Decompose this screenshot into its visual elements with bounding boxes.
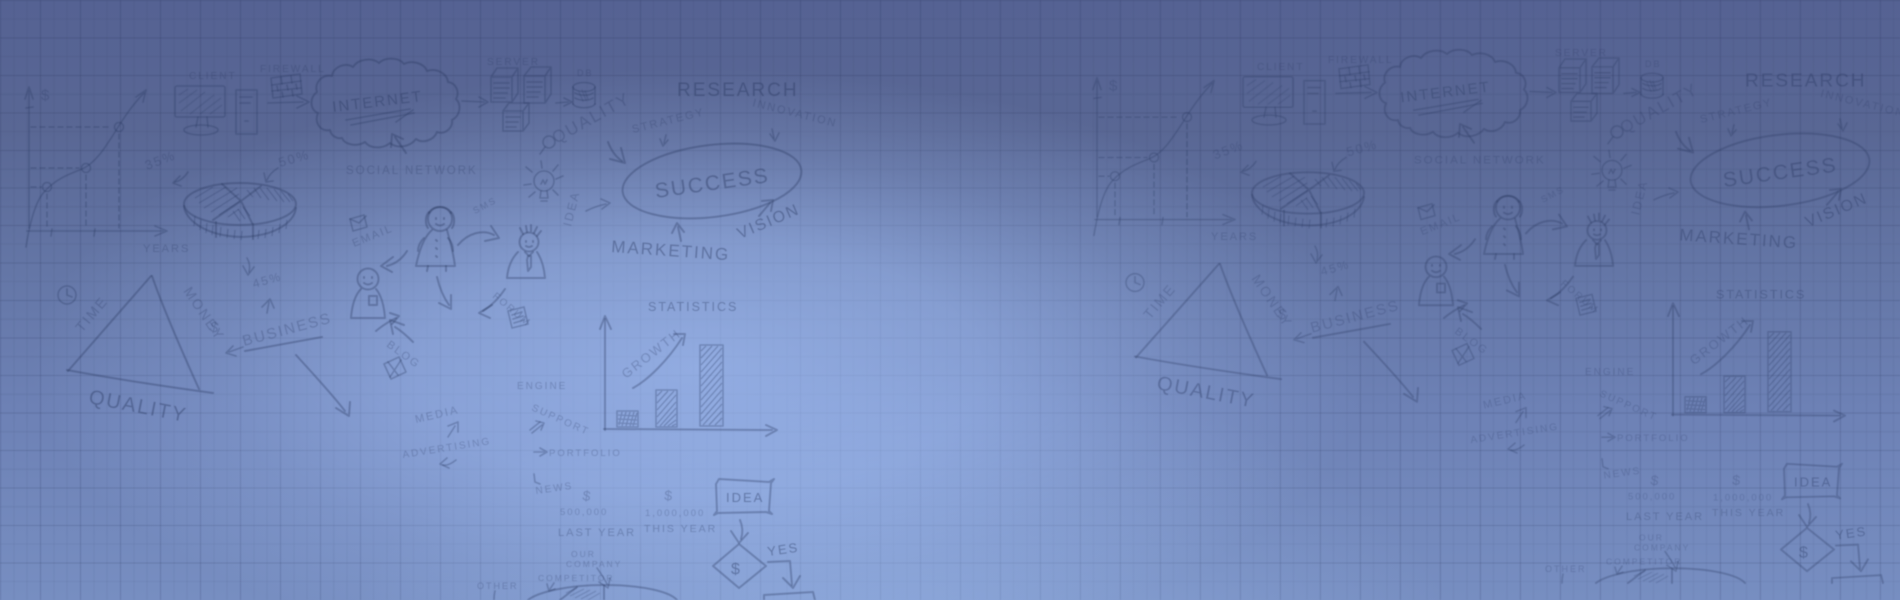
svg-text:PORTFOLIO: PORTFOLIO [549,448,622,459]
svg-text:500,000: 500,000 [560,507,608,518]
svg-text:35%: 35% [143,147,178,172]
svg-text:QUALITY: QUALITY [549,89,634,148]
svg-text:STATISTICS: STATISTICS [648,300,738,314]
svg-text:FIREWALL: FIREWALL [260,64,326,75]
svg-text:YEARS: YEARS [143,243,190,255]
svg-text:SUPPORT: SUPPORT [530,403,591,438]
svg-text:45%: 45% [251,269,284,291]
svg-text:OUR: OUR [571,549,596,559]
svg-text:$: $ [731,561,742,578]
svg-text:SMS: SMS [471,195,498,216]
svg-text:DB: DB [577,68,594,78]
svg-text:MONEY: MONEY [181,284,229,344]
svg-text:YES: YES [766,540,800,559]
svg-text:STRATEGY: STRATEGY [631,106,706,136]
svg-text:MEDIA: MEDIA [414,404,460,426]
svg-text:SOCIAL NETWORK: SOCIAL NETWORK [346,165,478,177]
svg-text:LAST YEAR: LAST YEAR [558,527,636,539]
svg-text:EMAIL: EMAIL [351,223,395,250]
svg-text:INNOVATION: INNOVATION [751,97,838,130]
svg-text:COMPANY: COMPANY [566,559,622,569]
svg-text:NEWS: NEWS [535,481,574,497]
svg-text:1,000,000: 1,000,000 [645,508,705,519]
svg-text:THIS YEAR: THIS YEAR [644,523,717,535]
svg-text:COMPETITOR: COMPETITOR [538,573,615,583]
svg-text:ENGINE: ENGINE [517,381,567,392]
svg-text:MARKETING: MARKETING [611,237,731,264]
svg-text:RESEARCH: RESEARCH [677,80,799,101]
svg-text:50%: 50% [277,147,312,170]
svg-text:IDEA: IDEA [726,490,764,505]
svg-text:QUALITY: QUALITY [87,386,189,427]
svg-text:VISION: VISION [735,201,803,243]
svg-text:OTHER: OTHER [477,581,519,591]
svg-text:CLIENT: CLIENT [189,71,237,82]
svg-text:IDEA: IDEA [560,189,582,227]
svg-text:$: $ [664,487,675,504]
svg-text:$: $ [582,487,594,504]
svg-text:$: $ [41,87,51,104]
svg-text:SUCCESS: SUCCESS [653,164,771,203]
